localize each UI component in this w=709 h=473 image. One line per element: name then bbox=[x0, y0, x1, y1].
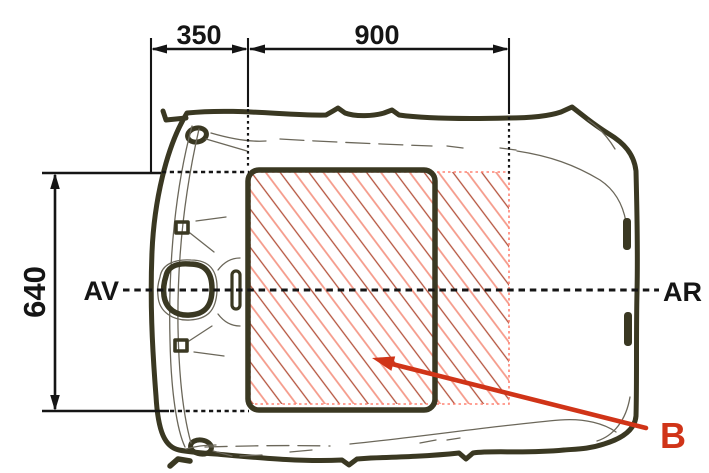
arrowhead-down bbox=[50, 395, 60, 411]
sketch-line bbox=[190, 217, 226, 252]
sketch-line bbox=[280, 139, 432, 146]
sketch-line bbox=[240, 450, 312, 456]
diagram-canvas: 350 900 640 AV AR B bbox=[0, 0, 709, 473]
sketch-line bbox=[170, 126, 192, 447]
dimension-350 bbox=[151, 38, 248, 173]
sketch-line bbox=[447, 146, 516, 150]
sketch-line bbox=[205, 446, 330, 447]
arrowhead-left bbox=[249, 45, 265, 54]
sketch-line bbox=[517, 151, 626, 222]
roof-dimension-drawing: 350 900 640 AV AR B bbox=[0, 0, 709, 473]
sketch-line bbox=[350, 420, 616, 444]
zone-hatch-fill bbox=[250, 172, 509, 404]
arrowhead-right bbox=[232, 45, 248, 54]
zone-b-label: B bbox=[660, 415, 686, 456]
dimension-900-value: 900 bbox=[354, 20, 399, 50]
sketch-line bbox=[206, 139, 247, 151]
arrowhead-left bbox=[151, 45, 167, 54]
rear-left-corner-tab bbox=[170, 459, 190, 466]
label-rear-ar: AR bbox=[663, 277, 702, 307]
dimension-350-value: 350 bbox=[176, 20, 221, 50]
rear-slot-upper bbox=[623, 218, 631, 250]
front-left-corner-tab bbox=[163, 111, 186, 120]
sketch-line bbox=[420, 438, 460, 443]
sketch-line bbox=[218, 258, 240, 326]
front-bracket-lower bbox=[175, 340, 187, 351]
dimension-640-value: 640 bbox=[17, 266, 52, 318]
label-front-av: AV bbox=[83, 276, 119, 306]
dimension-900 bbox=[249, 38, 509, 180]
rear-slot-lower bbox=[624, 312, 632, 346]
sketch-line bbox=[211, 133, 266, 141]
sketch-line bbox=[189, 326, 224, 356]
arrowhead-right bbox=[493, 45, 509, 54]
arrowhead-up bbox=[50, 173, 60, 189]
